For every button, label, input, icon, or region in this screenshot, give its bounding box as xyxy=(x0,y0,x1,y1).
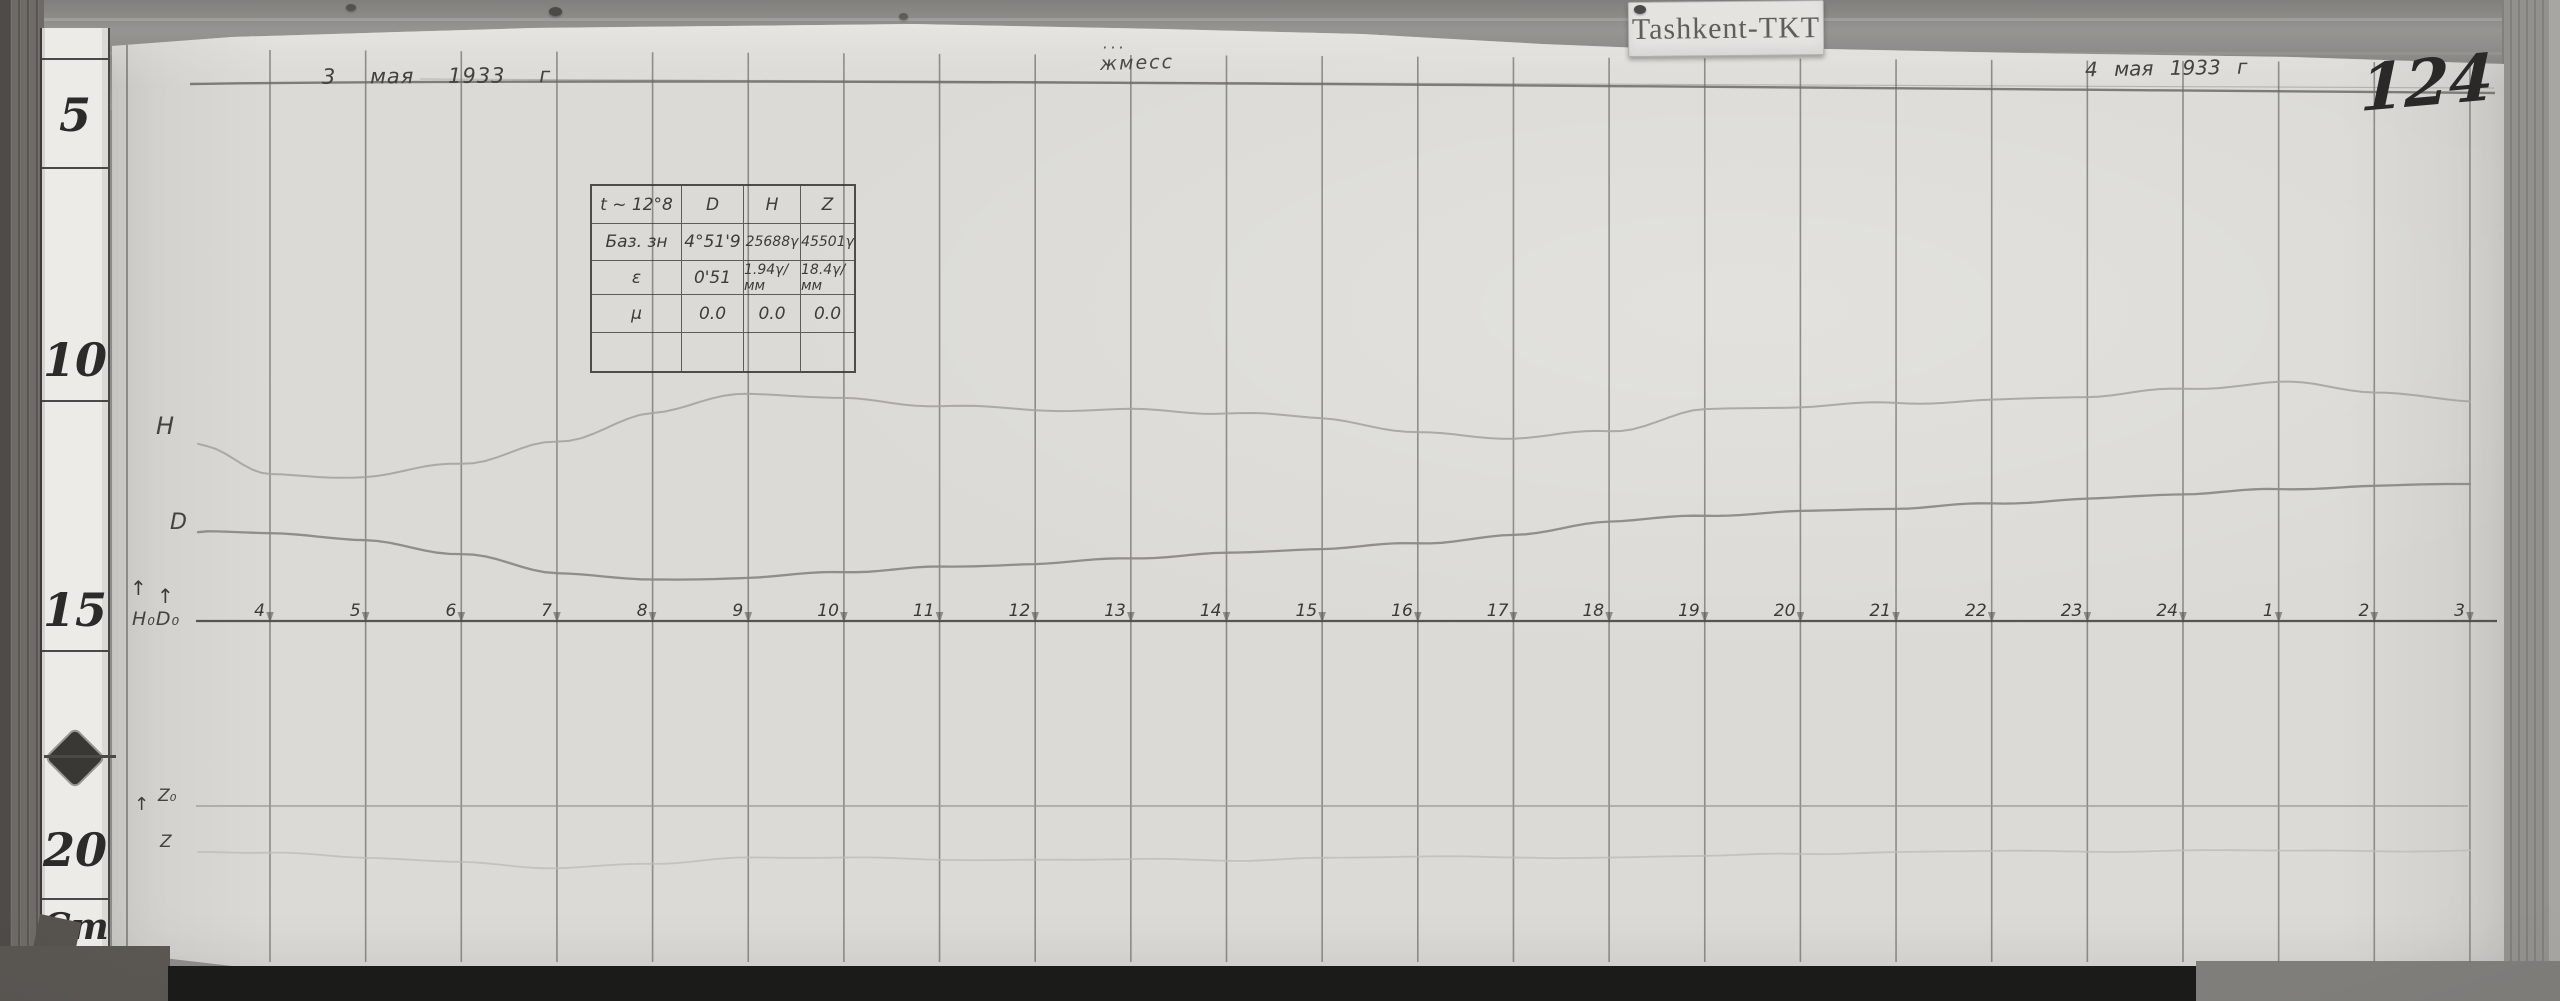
trace-label-h: H xyxy=(156,412,174,440)
table-cell xyxy=(801,333,854,371)
up-arrow-icon: ↑ xyxy=(134,794,149,815)
table-cell: 0'51 xyxy=(682,261,744,295)
wood-streak xyxy=(0,18,2560,21)
ruler-divider xyxy=(42,58,108,60)
date-annotation-left: 3 мая 1933 г xyxy=(322,63,551,89)
ruler-divider xyxy=(42,400,108,402)
ruler-mark-5: 5 xyxy=(42,88,108,142)
table-cell: 45501γ xyxy=(801,224,854,261)
baseline-label-z0: Z₀ xyxy=(158,786,176,806)
table-cell xyxy=(592,333,682,371)
table-cell: μ xyxy=(592,295,682,333)
trace-label-d: D xyxy=(170,510,187,535)
wood-bottom-left xyxy=(0,946,170,1001)
table-cell: 25688γ xyxy=(744,224,801,261)
paper-sheen xyxy=(112,24,2504,966)
table-header-cell: Z xyxy=(801,186,854,224)
pin-icon xyxy=(346,4,356,11)
bottom-gray-strip xyxy=(2196,961,2560,1001)
table-cell xyxy=(682,333,744,371)
table-cell: 1.94γ/мм xyxy=(744,261,801,295)
up-arrow-icon: ↑ xyxy=(157,584,174,608)
table-cell: 0.0 xyxy=(682,295,744,333)
station-label: Tashkent-TKT xyxy=(1628,0,1825,57)
paper-left-edge-line xyxy=(126,44,128,966)
table-header-cell: H xyxy=(744,186,801,224)
table-cell: 0.0 xyxy=(801,295,854,333)
ruler-mark-10: 10 xyxy=(42,333,108,387)
table-cell: 4°51'9 xyxy=(682,224,744,261)
page-number: 124 xyxy=(2360,40,2494,127)
ruler-divider xyxy=(42,650,108,652)
magnetogram-photo: 456789101112131415161718192021222324123 … xyxy=(0,0,2560,1001)
pin-icon xyxy=(899,13,908,20)
table-header-cell: t ~ 12°8 xyxy=(592,186,682,224)
table-header-cell: D xyxy=(682,186,744,224)
wood-background-right-edge xyxy=(2549,0,2560,1001)
table-cell xyxy=(744,333,801,371)
ruler-mark-20: 20 xyxy=(42,823,108,877)
table-cell: 18.4γ/мм xyxy=(801,261,854,295)
ruler-mark-15: 15 xyxy=(42,583,108,637)
ruler-divider xyxy=(42,898,108,900)
bottom-black-strip xyxy=(168,966,2196,1001)
ruler-divider xyxy=(42,167,108,169)
table-cell: Баз. зн xyxy=(592,224,682,261)
up-arrow-icon: ↑ xyxy=(130,576,147,600)
wood-background-left-edge xyxy=(0,0,10,1001)
date-annotation-right: 4 мая 1933 г xyxy=(2085,55,2248,82)
magnetogram-paper xyxy=(112,24,2504,966)
table-cell: ε xyxy=(592,261,682,295)
pin-icon xyxy=(1634,5,1646,14)
calibration-table: t ~ 12°8 D H Z Баз. зн 4°51'9 25688γ 455… xyxy=(590,184,856,373)
diamond-pin-line xyxy=(44,755,116,758)
pin-icon xyxy=(549,7,562,16)
diamond-pin-icon xyxy=(47,730,104,787)
baseline-label-h0d0: H₀D₀ xyxy=(132,608,180,630)
trace-label-z: Z xyxy=(160,832,172,852)
cm-ruler: 5 10 15 20 Cm xyxy=(40,28,110,950)
table-cell: 0.0 xyxy=(744,295,801,333)
center-annotation: жмесс xyxy=(1100,51,1175,75)
